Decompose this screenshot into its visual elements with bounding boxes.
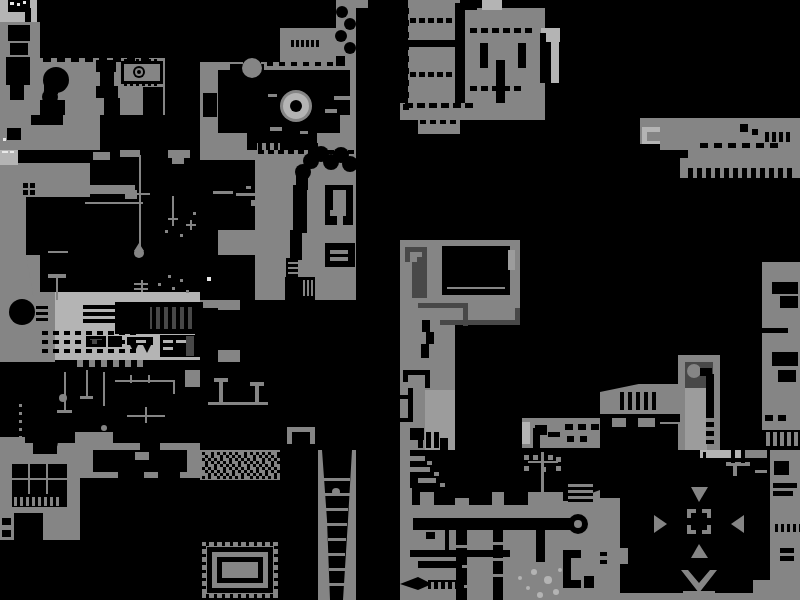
game-screen <box>0 0 800 600</box>
world-map-canvas[interactable] <box>0 0 800 600</box>
